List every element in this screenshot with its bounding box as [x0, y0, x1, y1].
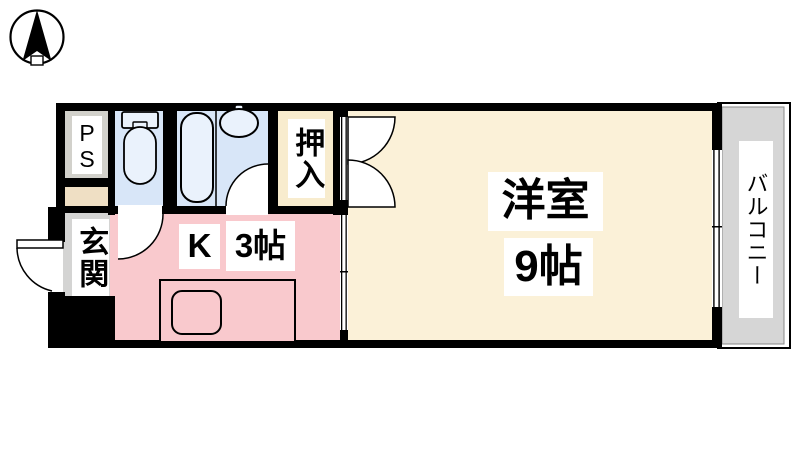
- closet-door-jamb-top: [340, 103, 348, 117]
- wall-nook-genkan: [65, 206, 108, 213]
- balcony-window: [712, 150, 722, 307]
- entry-void-block: [62, 296, 115, 348]
- bathtub: [181, 113, 213, 202]
- wall-bottom: [50, 340, 722, 348]
- toilet-bowl: [124, 127, 156, 184]
- ps-label: PS: [72, 116, 102, 174]
- compass-base-marker: [31, 56, 43, 65]
- room-size-label: 9帖: [504, 238, 593, 296]
- wall-left-mid: [48, 207, 65, 242]
- wall-left-upper: [56, 103, 65, 207]
- wall-ps-toilet: [108, 103, 115, 215]
- bathroom-doorway-gap: [226, 205, 268, 215]
- wall-ps-bottom: [65, 178, 108, 187]
- washbasin: [220, 109, 258, 137]
- entrance-door: [17, 240, 63, 291]
- balcony-label: バルコニー: [739, 141, 773, 318]
- closet-door-jamb-bottom: [340, 200, 348, 215]
- kitchen-type-label: K: [179, 224, 220, 269]
- wall-toilet-bath: [163, 103, 177, 213]
- wall-closet-right: [333, 103, 340, 215]
- utility-nook-floor: [63, 184, 110, 208]
- entrance-door-swing: [17, 248, 52, 291]
- toilet-doorway-gap: [118, 205, 162, 215]
- wall-bath-closet: [268, 103, 278, 213]
- wall-right-upper: [712, 103, 722, 150]
- kitchen-size-label: 3帖: [226, 221, 295, 271]
- kitchen-sliding-door: [340, 215, 348, 330]
- sliding-door-jamb: [340, 330, 348, 348]
- compass: [11, 10, 64, 65]
- oshiire-label: 押入: [288, 119, 325, 198]
- floor-plan-drawing: [0, 0, 800, 450]
- floor-plan-page: PS 玄関 押入 K 3帖 洋室 9帖 バルコニー: [0, 0, 800, 450]
- closet-door-track: [340, 117, 348, 200]
- room-name-label: 洋室: [488, 172, 603, 231]
- genkan-label: 玄関: [72, 219, 109, 296]
- kitchen-sink: [172, 291, 221, 334]
- wall-top: [56, 103, 722, 111]
- wall-right-lower: [712, 307, 722, 348]
- entrance-door-leaf: [17, 240, 63, 248]
